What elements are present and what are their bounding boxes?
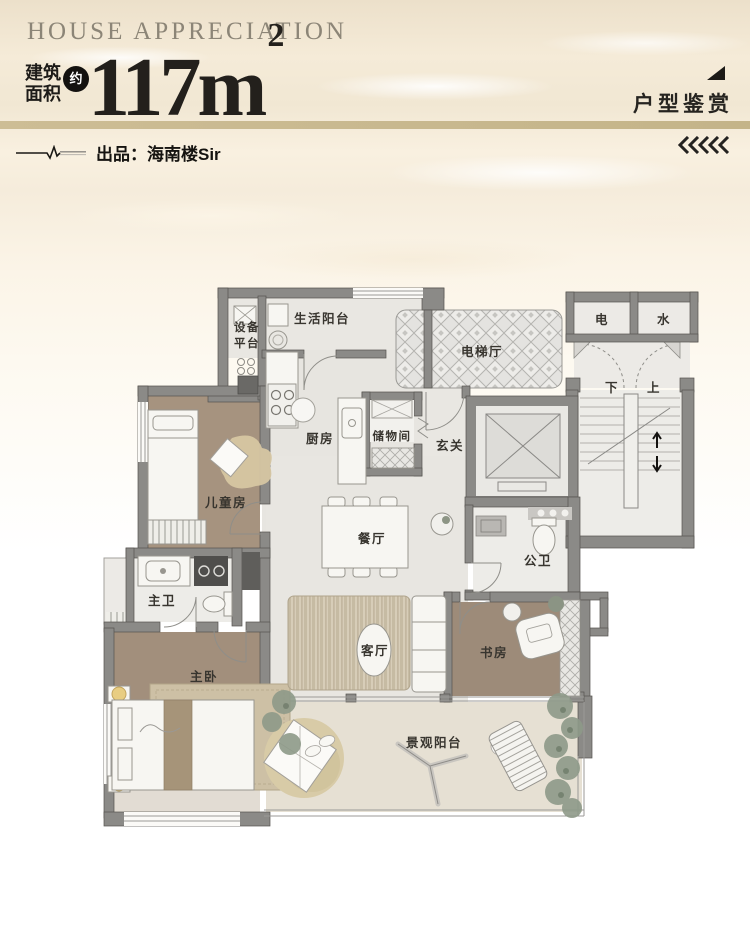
room-label-dining: 餐厅 [357,531,386,546]
corner-triangle-icon [707,66,725,80]
approx-badge: 约 [63,66,89,92]
room-label-storage: 储物间 [373,429,412,443]
corner-tag: 户型鉴赏 [633,88,733,118]
chevrons-left-icon [678,136,730,154]
room-label-water: 水 [657,312,671,327]
area-value-exponent: 2 [267,17,284,54]
room-label-foyer: 玄关 [436,438,464,453]
room-label-life-balcony: 生活阳台 [294,311,350,326]
area-label-line1: 建筑 [25,63,61,84]
room-label-stairs-down: 下 [605,381,619,395]
room-label-electric: 电 [595,312,609,327]
room-label-equipment-line1: 设备 [234,320,260,334]
area-value: 117m2 [88,34,280,130]
pulse-line-icon [16,145,86,161]
room-label-living-room: 客厅 [360,643,389,658]
area-label-line2: 面积 [25,84,61,105]
area-label: 建筑 面积 [25,63,61,105]
floorplan: 设备 平台 生活阳台 电梯厅 电 水 下 上 厨房 储物间 玄关 儿童房 餐厅 … [99,282,711,866]
room-label-master-bedroom: 主卧 [190,669,218,684]
room-label-guest-bath: 公卫 [524,554,552,568]
room-label-stairs-up: 上 [647,380,661,395]
room-label-study: 书房 [480,645,508,660]
publisher-text: 出品：海南楼Sir [96,140,221,165]
room-label-equipment-line2: 平台 [234,336,260,350]
room-label-elevator-hall: 电梯厅 [461,344,503,359]
poster-page: HOUSE APPRECIATION 建筑 面积 约 117m2 出品：海南楼S… [0,0,750,952]
room-label-kitchen: 厨房 [306,431,334,446]
room-label-kids-room: 儿童房 [204,495,247,510]
room-label-view-balcony: 景观阳台 [406,735,462,750]
elevator-shaft [476,406,568,496]
accent-bar [0,121,750,129]
room-label-master-bath: 主卫 [148,593,176,608]
publisher-row: 出品：海南楼Sir [16,140,221,165]
